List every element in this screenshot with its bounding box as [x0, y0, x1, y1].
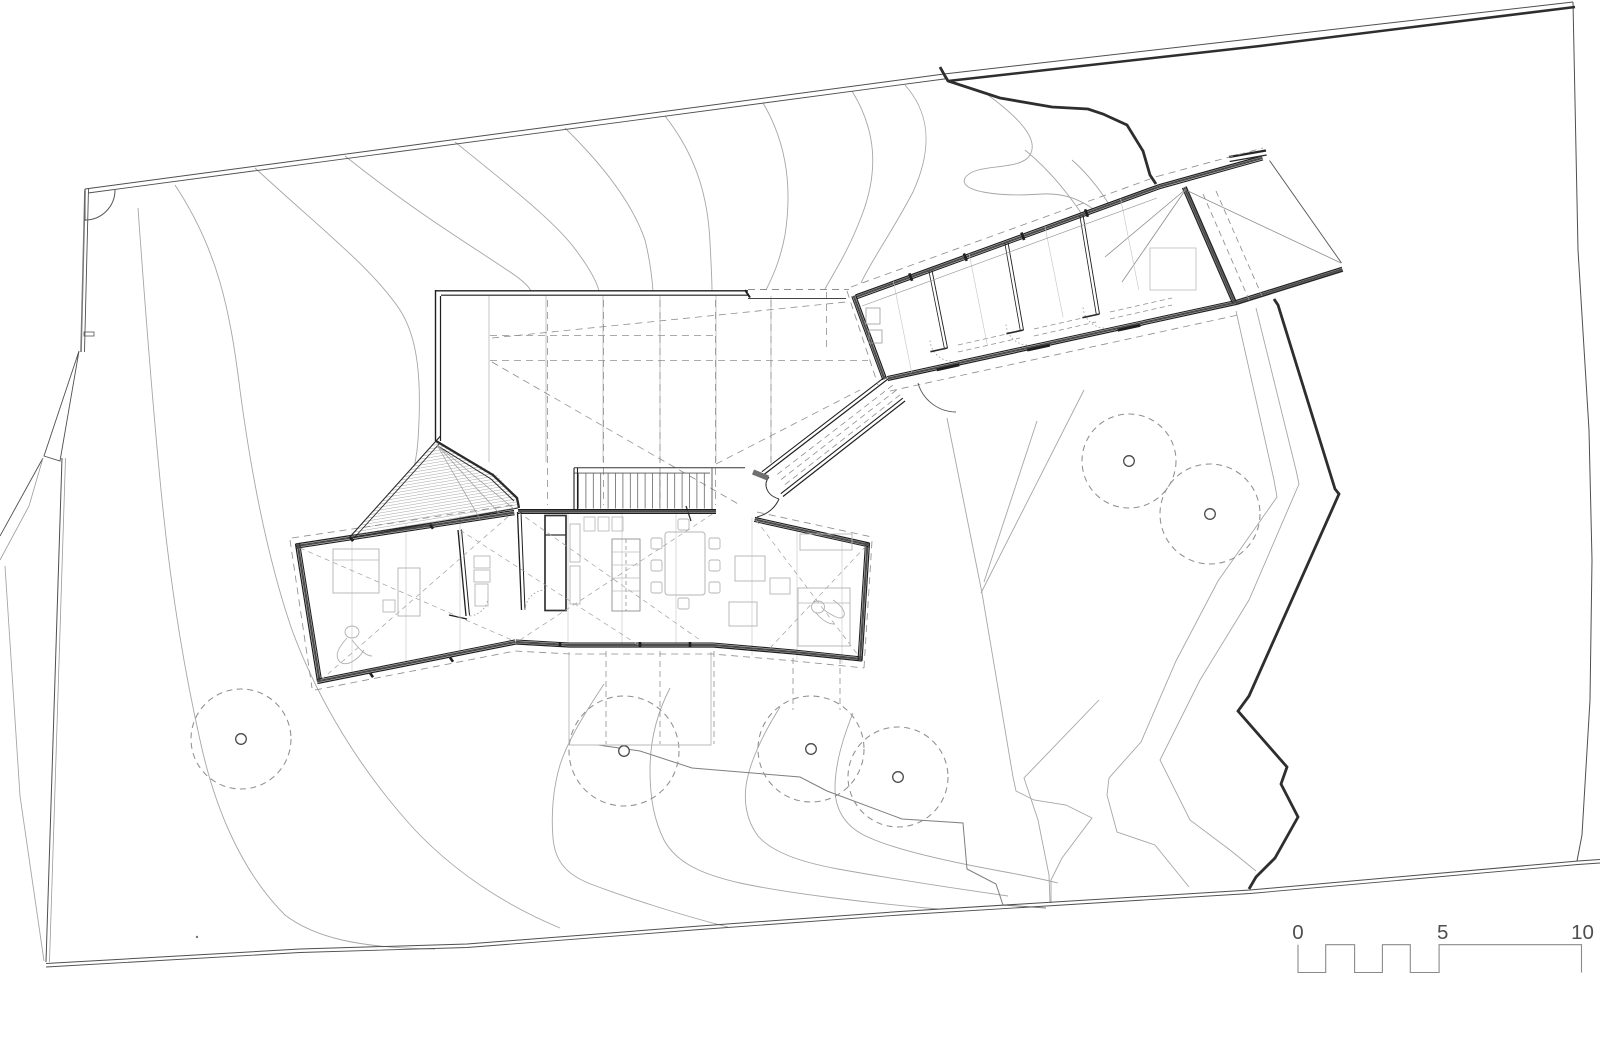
- svg-text:5: 5: [1437, 921, 1448, 944]
- svg-text:10: 10: [1571, 921, 1594, 944]
- svg-text:0: 0: [1292, 921, 1303, 944]
